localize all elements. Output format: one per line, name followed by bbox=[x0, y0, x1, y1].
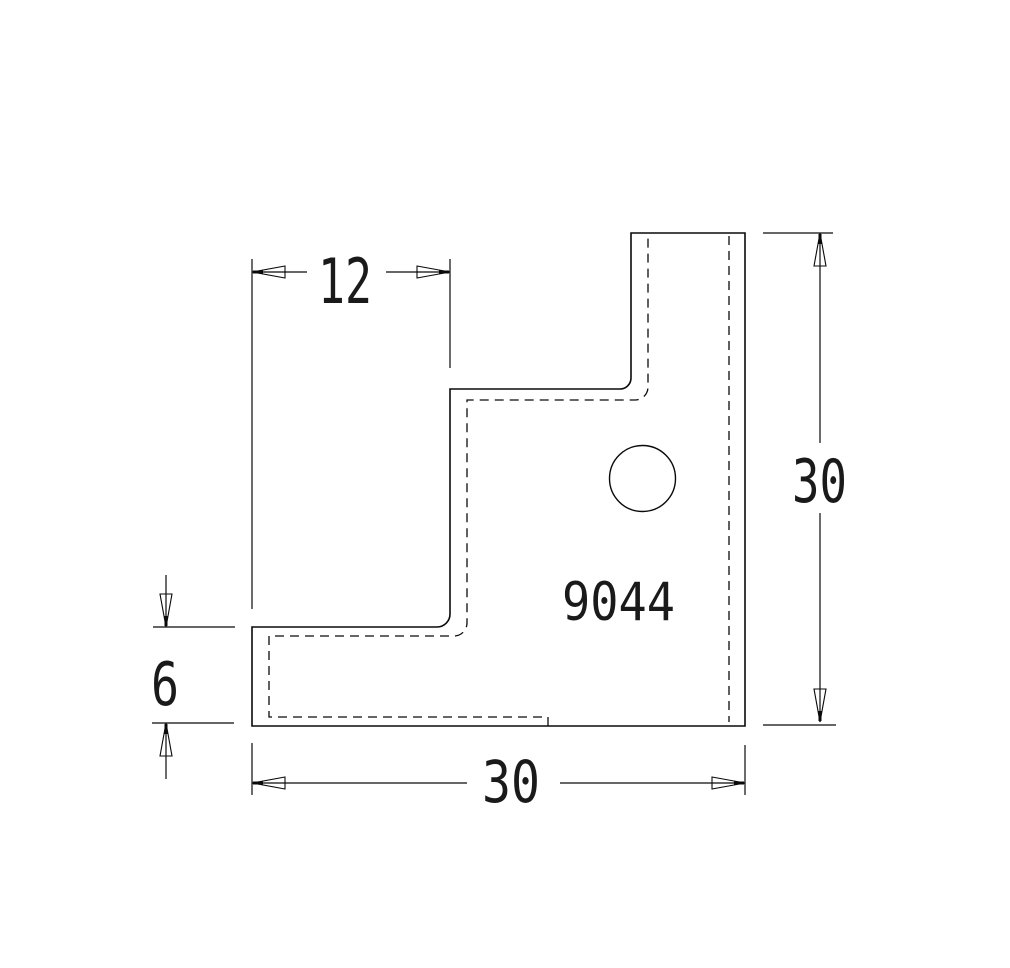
dim-right-height: 30 bbox=[763, 233, 847, 725]
hole-circle bbox=[610, 446, 676, 512]
part-number-text: 9044 bbox=[562, 572, 675, 633]
dim-right-height-value: 30 bbox=[792, 447, 847, 517]
dim-bottom-width: 30 bbox=[252, 743, 745, 816]
dim-left-flange-value: 6 bbox=[151, 650, 179, 720]
dim-top-width: 12 bbox=[252, 245, 450, 609]
cad-drawing-canvas: 9044 12 30 bbox=[0, 0, 1010, 968]
dim-left-flange: 6 bbox=[151, 575, 235, 779]
cad-drawing-page: 9044 12 30 bbox=[0, 0, 1010, 968]
dim-top-width-value: 12 bbox=[318, 245, 372, 318]
dim-bottom-width-value: 30 bbox=[482, 748, 540, 816]
